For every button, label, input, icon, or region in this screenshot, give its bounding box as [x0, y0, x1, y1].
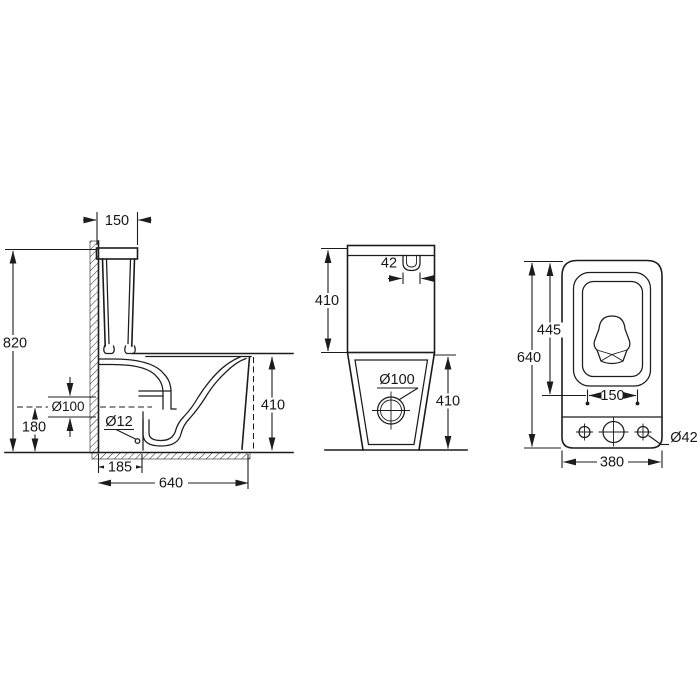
- dim-top-overall-depth: 640: [514, 262, 563, 449]
- dim-top-hole-diameter: Ø42: [649, 430, 698, 446]
- floor-hatch: [92, 453, 250, 460]
- dim-front-drain-diameter: Ø100: [377, 372, 418, 400]
- dim-front-tank-height: 410: [313, 249, 347, 353]
- dim-label: Ø100: [51, 399, 84, 414]
- tank-foot-right: [125, 346, 135, 354]
- dim-label: 445: [537, 322, 561, 338]
- wall-hatch: [90, 241, 99, 453]
- tank-section: [97, 248, 138, 354]
- top-view: 640 445 150 Ø42: [514, 261, 698, 471]
- dim-label: 180: [22, 419, 46, 435]
- fixing-hole: [135, 439, 140, 444]
- dim-label: 820: [3, 335, 27, 351]
- dim-label: 42: [381, 255, 397, 271]
- dim-side-tank-width: 150: [83, 212, 152, 245]
- seat-inner-outline: [583, 282, 643, 377]
- dim-label: 410: [436, 393, 460, 409]
- dim-side-outlet-height: 180: [20, 409, 49, 452]
- dim-label: 150: [600, 388, 624, 404]
- dim-label: 185: [108, 459, 132, 475]
- dim-label: Ø42: [670, 430, 697, 446]
- dim-label: 640: [517, 350, 541, 366]
- front-pedestal: [348, 353, 435, 451]
- dim-label: 640: [159, 475, 183, 491]
- tank-holes: [576, 418, 652, 447]
- dim-label: 150: [105, 213, 129, 229]
- front-view: 42 410 Ø100 410: [313, 246, 467, 451]
- bowl-front-slope: [242, 357, 250, 449]
- toilet-dimension-drawing: 150 820 Ø100 180 Ø12: [0, 0, 700, 700]
- side-section-view: 150 820 Ø100 180 Ø12: [0, 212, 293, 491]
- tank-foot-left: [104, 346, 114, 354]
- dim-top-tank-width: 380: [562, 451, 662, 471]
- dim-label: Ø12: [105, 414, 132, 430]
- dim-front-base-height: 410: [433, 355, 463, 449]
- dim-label: 410: [315, 293, 339, 309]
- dim-top-seat-depth: 445: [535, 264, 586, 396]
- seat-outline: [574, 273, 651, 387]
- dim-label: Ø100: [379, 372, 414, 388]
- dim-side-bowl-height: 410: [257, 357, 288, 450]
- dim-side-fixing-hole: Ø12: [104, 414, 136, 439]
- dim-label: 410: [261, 397, 285, 413]
- dim-side-outlet-diameter: Ø100: [48, 377, 96, 437]
- technical-drawing-page: 150 820 Ø100 180 Ø12: [0, 0, 700, 700]
- bowl-water-shape: [594, 316, 630, 364]
- dim-top-hinge-spacing: 150: [586, 388, 640, 406]
- flush-button: [403, 256, 420, 271]
- dim-label: 380: [600, 454, 624, 470]
